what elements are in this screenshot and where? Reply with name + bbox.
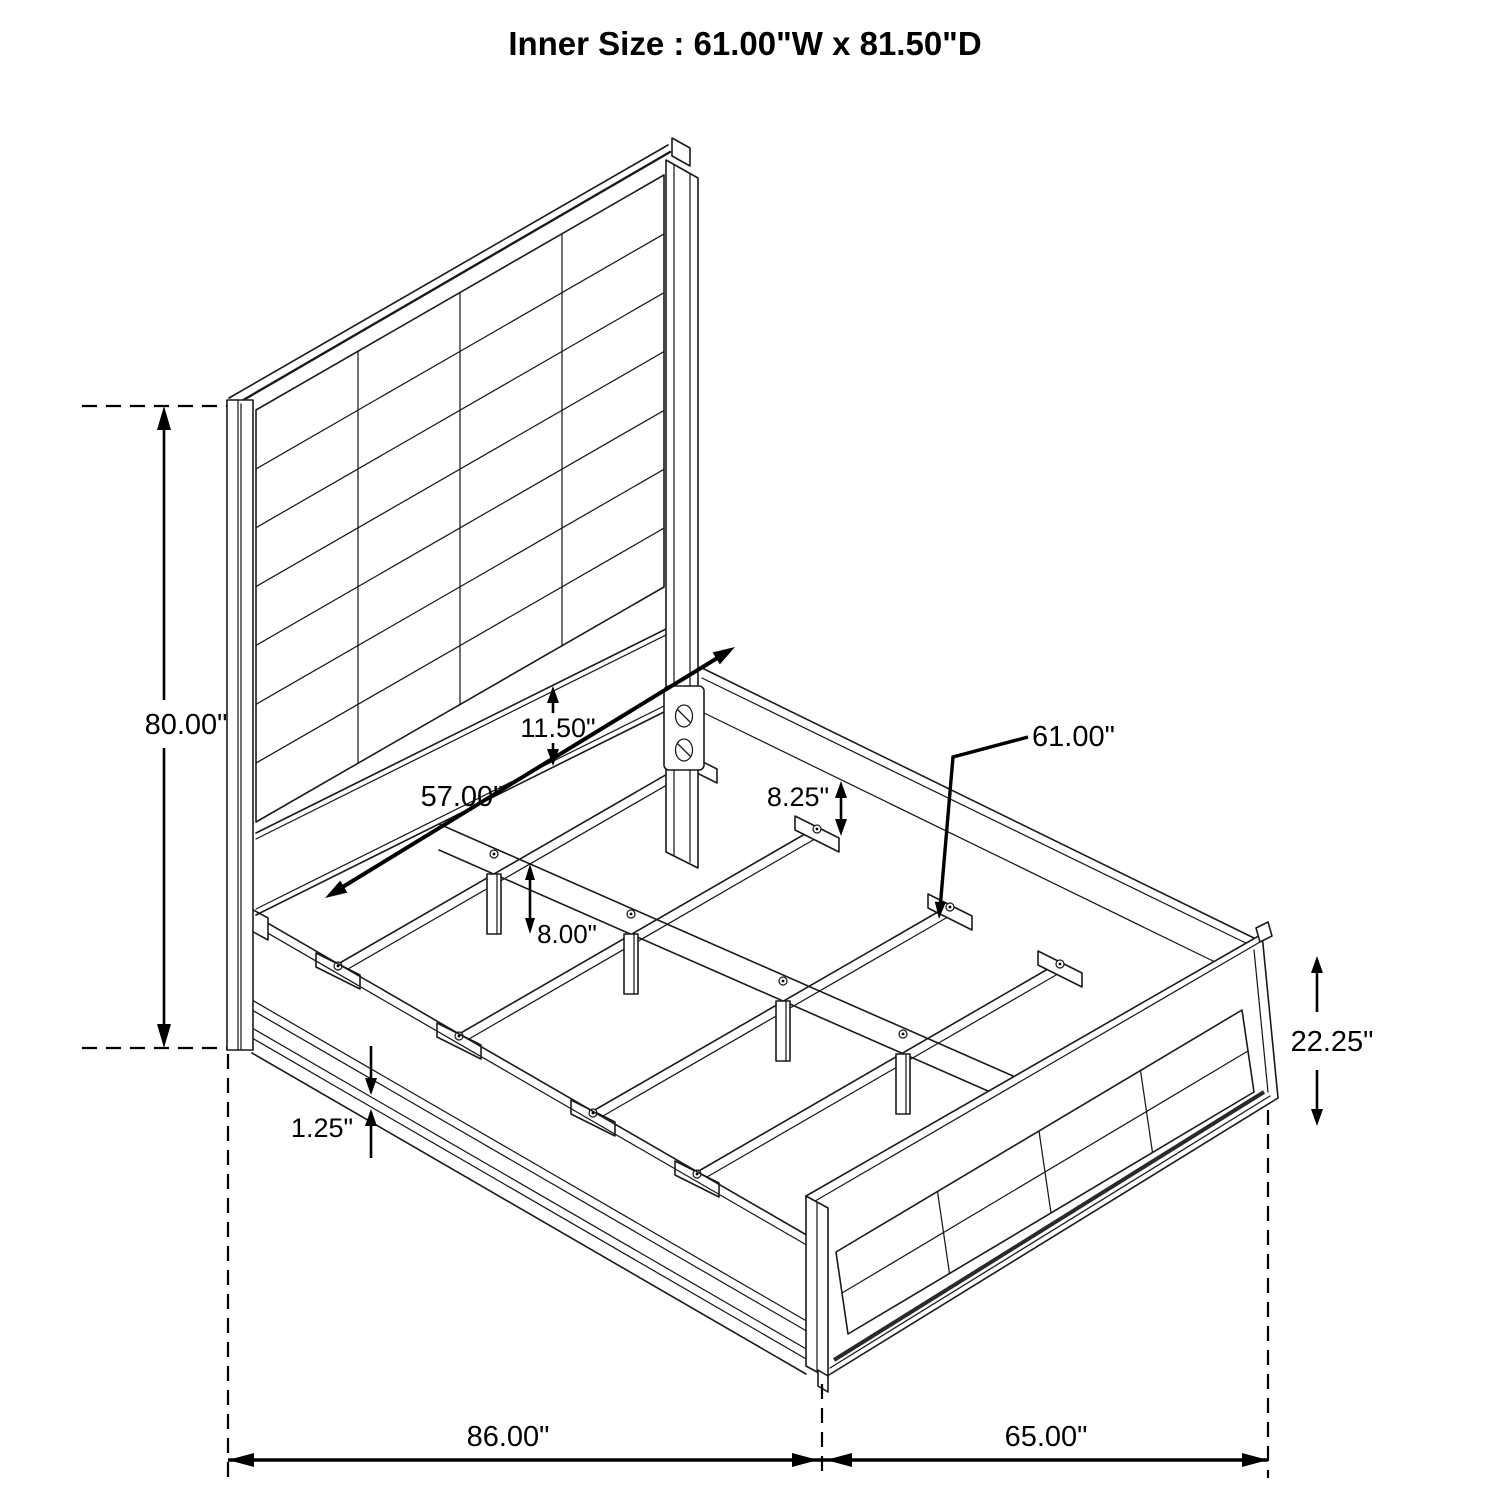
dim-headboard-height: 80.00": [82, 406, 227, 1048]
dim-label-6100: 61.00": [1032, 721, 1115, 753]
dim-label-125: 1.25": [291, 1113, 353, 1143]
dim-slat-length: 61.00": [935, 721, 1115, 919]
dim-label-8600: 86.00": [467, 1421, 550, 1453]
center-rail: [439, 824, 1013, 1102]
dim-base-trim: 1.25": [291, 1046, 377, 1158]
diagram-page: 80.00" 11.50" 57.00" 8.25" 61.00" 8.00": [0, 0, 1500, 1500]
dim-label-80: 80.00": [145, 709, 228, 741]
footboard-near-post: [806, 1196, 828, 1392]
dim-label-2225: 22.25": [1291, 1026, 1374, 1058]
bed-frame-diagram: 80.00" 11.50" 57.00" 8.25" 61.00" 8.00": [0, 0, 1500, 1500]
headboard-left-post: [227, 400, 253, 1050]
dim-footboard-height: 22.25": [1291, 956, 1374, 1126]
rail-bracket: [664, 686, 704, 770]
dim-label-800: 8.00": [537, 919, 597, 949]
footboard-far-cap: [1256, 922, 1272, 942]
footboard: [806, 922, 1278, 1392]
dim-label-6500: 65.00": [1005, 1421, 1088, 1453]
dim-label-825: 8.25": [767, 782, 829, 812]
side-rail-far: [702, 668, 1258, 980]
page-title: Inner Size : 61.00"W x 81.50"D: [508, 25, 981, 62]
dim-label-5700: 57.00": [421, 781, 504, 813]
